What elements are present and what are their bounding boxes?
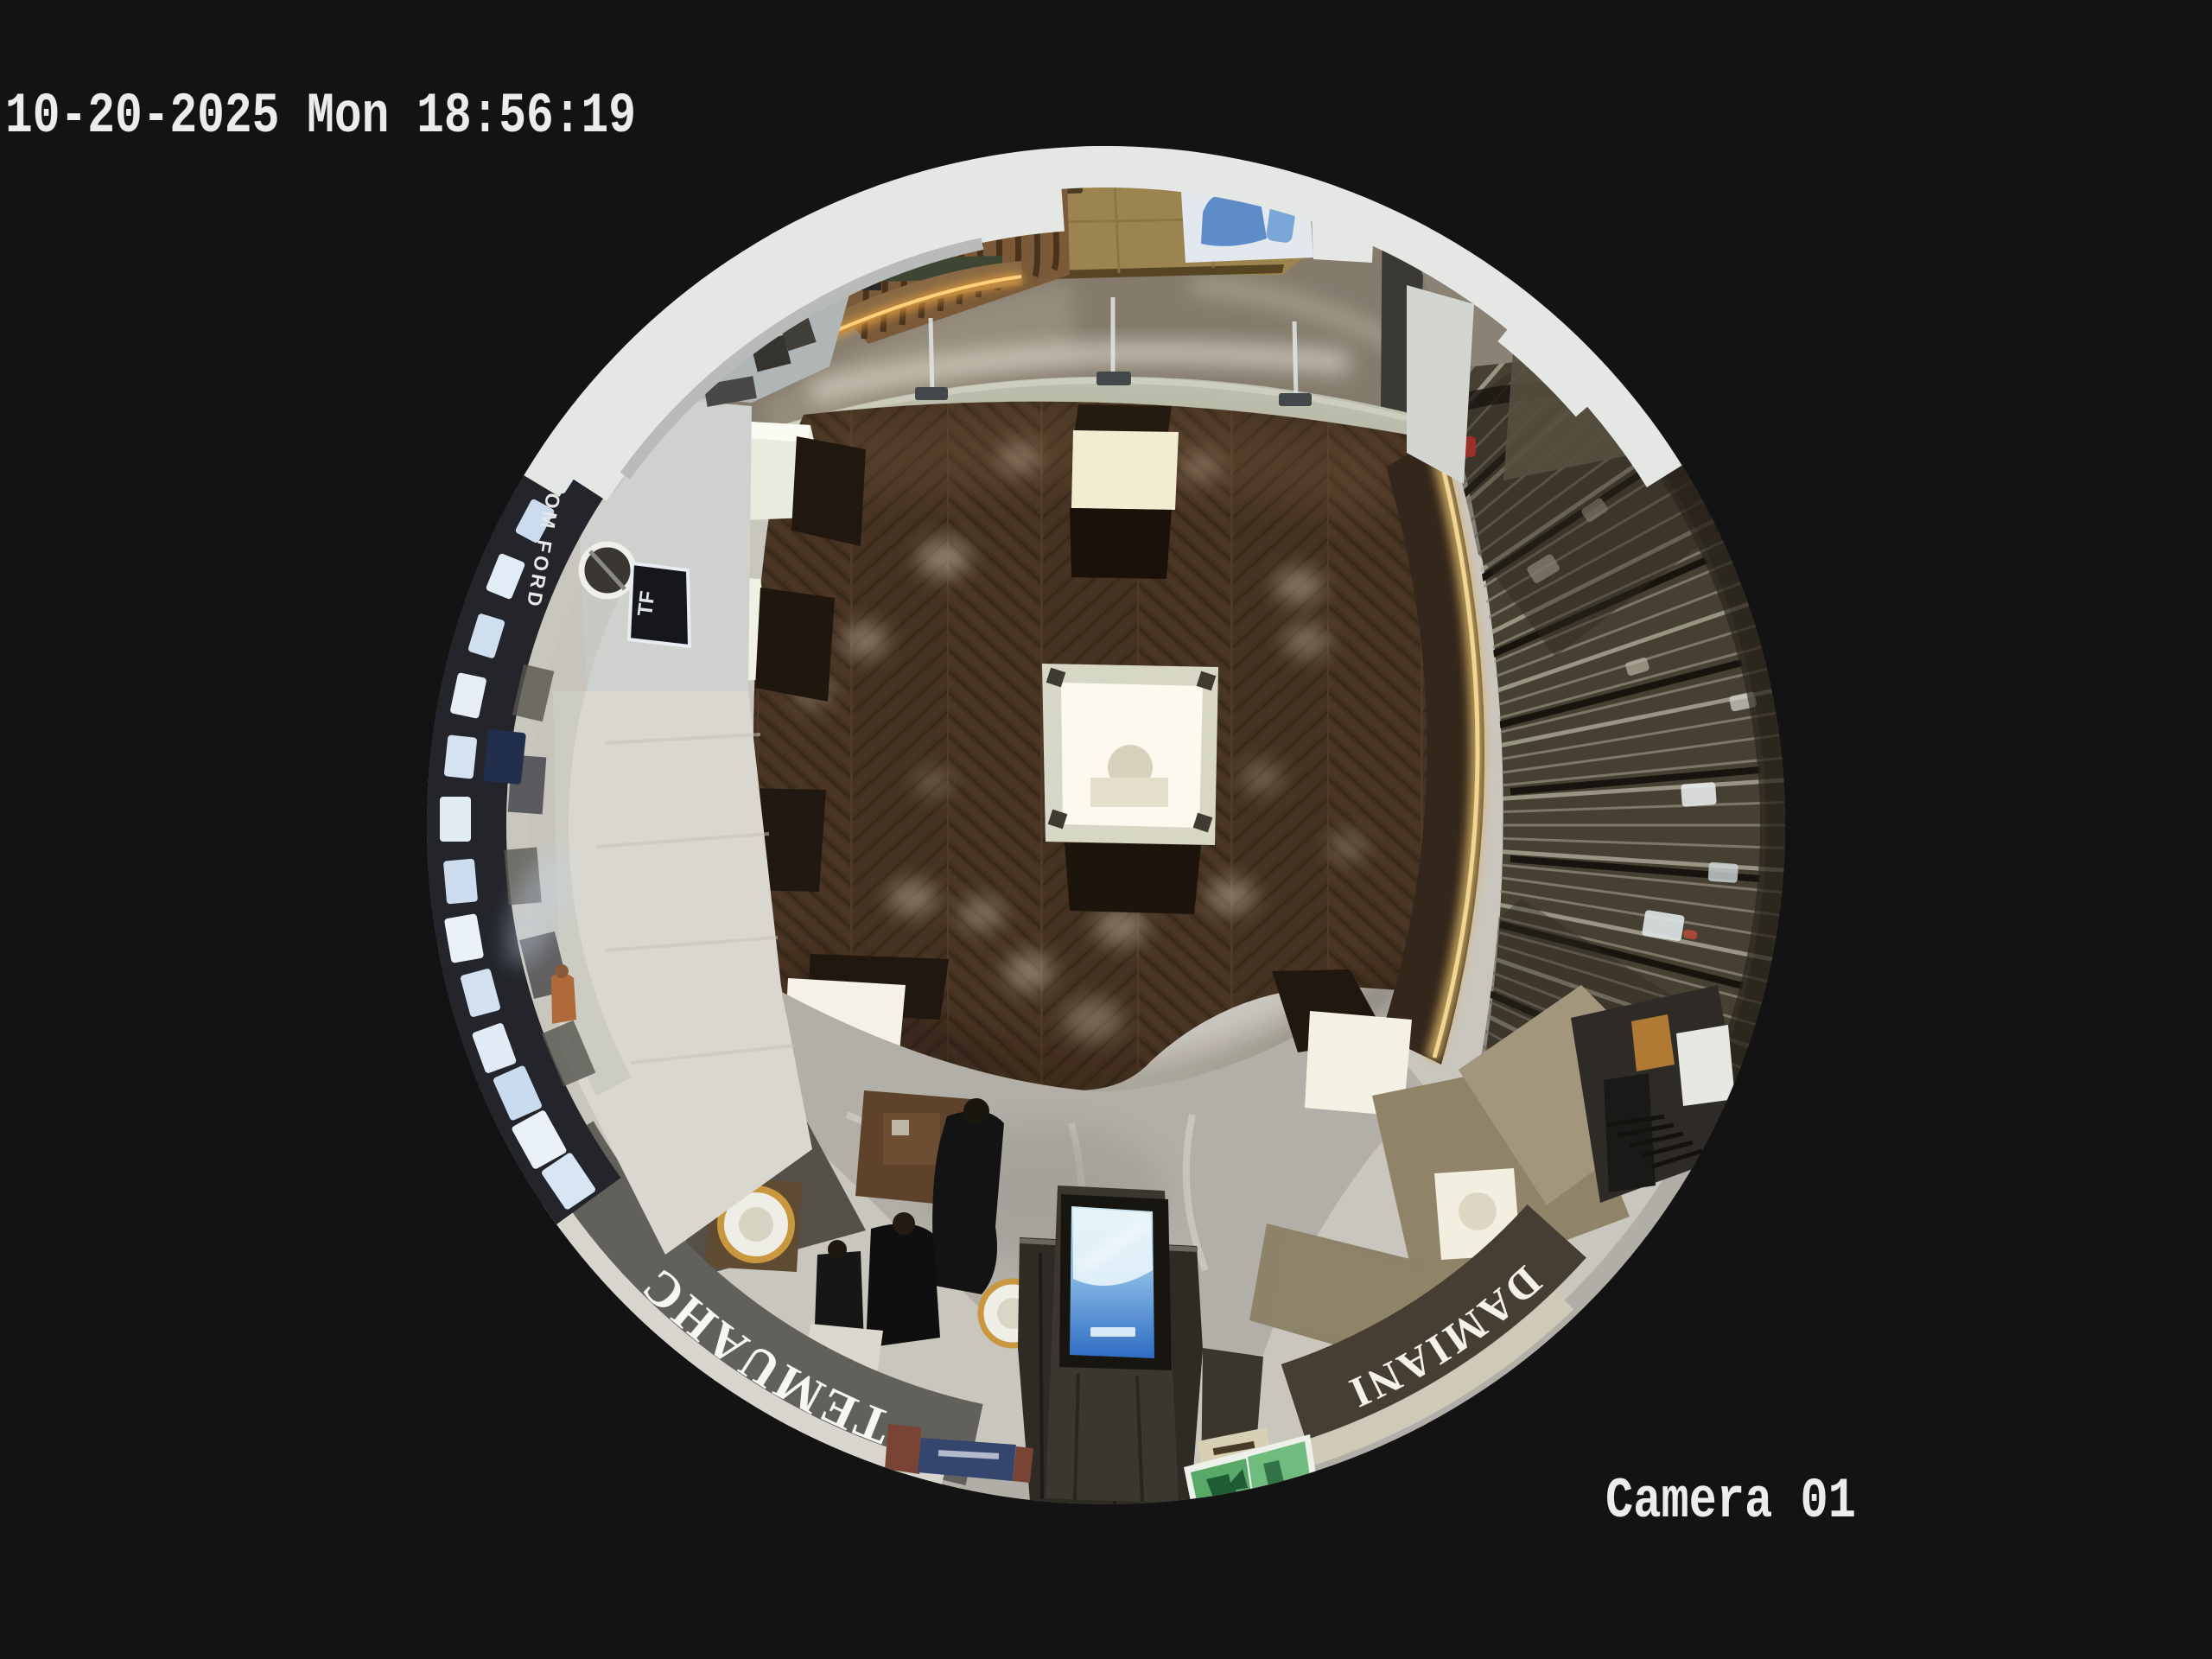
- svg-text:TF: TF: [633, 589, 659, 617]
- svg-text:Camera 01: Camera 01: [1605, 1469, 1856, 1534]
- svg-text:10-20-2025 Mon 18:56:19: 10-20-2025 Mon 18:56:19: [5, 84, 636, 149]
